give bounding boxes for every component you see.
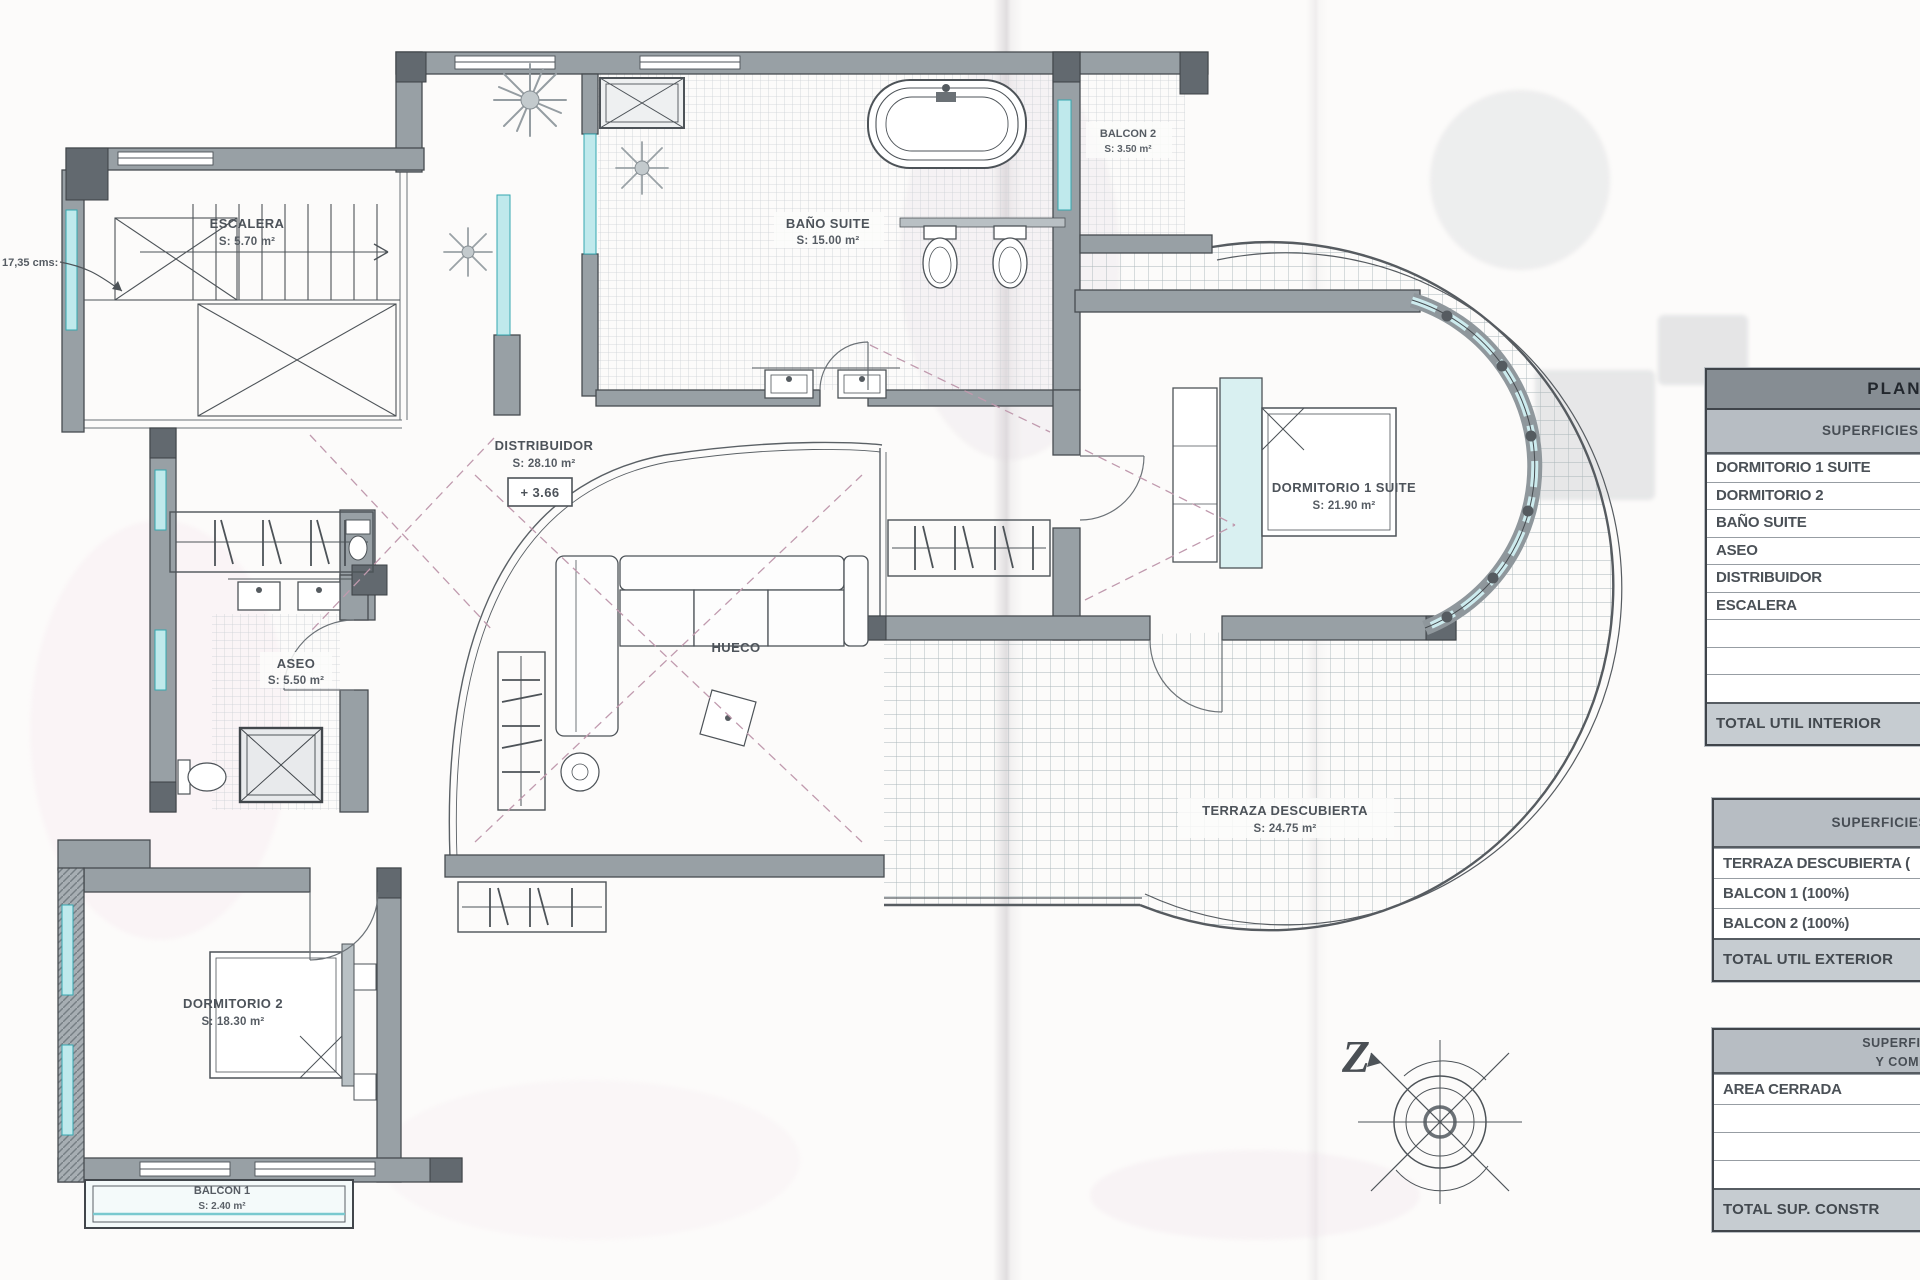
table-subtitle-construidas: SUPERFICIES CON Y COMPUTABL xyxy=(1714,1030,1920,1074)
table-superficies-interiores: PLANTA A SUPERFICIES ÚTILES INTE DORMITO… xyxy=(1705,368,1920,746)
room-label-dormitorio1: DORMITORIO 1 SUITE xyxy=(1272,480,1416,495)
plant xyxy=(494,64,566,136)
side-table xyxy=(561,753,599,791)
table-row: BAÑO SUITE xyxy=(1707,509,1920,537)
floor-plan-drawing: ESCALERA S: 5.70 m² DISTRIBUIDOR S: 28.1… xyxy=(0,0,1920,1280)
aseo-shower xyxy=(240,728,322,802)
room-label-terraza: TERRAZA DESCUBIERTA xyxy=(1202,803,1368,818)
room-area-balcon2: S: 3.50 m² xyxy=(1104,144,1152,155)
hall-closet xyxy=(458,882,606,932)
table-subtitle-interiores: SUPERFICIES ÚTILES INTE xyxy=(1707,410,1920,454)
toilet xyxy=(923,226,957,288)
table-row: BALCON 1 (100%) xyxy=(1714,878,1920,908)
table-row xyxy=(1707,619,1920,647)
svg-text:+ 3.66: + 3.66 xyxy=(521,485,560,500)
compass-north-letter: Z xyxy=(1341,1031,1370,1082)
table-superficies-exteriores: SUPERFICIES ÚTILES EXT TERRAZA DESCUBIER… xyxy=(1712,798,1920,982)
room-area-bano-suite: S: 15.00 m² xyxy=(797,235,860,247)
room-area-balcon1: S: 2.40 m² xyxy=(198,1201,246,1212)
table-row: ASEO xyxy=(1707,537,1920,565)
compass-rose xyxy=(1358,1040,1522,1204)
table-row: TERRAZA DESCUBIERTA ( xyxy=(1714,848,1920,878)
table-row xyxy=(1714,1132,1920,1160)
table-row: DORMITORIO 2 xyxy=(1707,482,1920,510)
bathtub xyxy=(868,80,1026,168)
table-row xyxy=(1714,1160,1920,1188)
table-row xyxy=(1707,647,1920,675)
room-label-balcon2: BALCON 2 xyxy=(1100,128,1156,140)
room-area-aseo: S: 5.50 m² xyxy=(268,675,324,687)
room-area-dormitorio1: S: 21.90 m² xyxy=(1313,500,1376,512)
room-area-dormitorio2: S: 18.30 m² xyxy=(202,1016,265,1028)
room-area-distribuidor: S: 28.10 m² xyxy=(513,458,576,470)
room-area-terraza: S: 24.75 m² xyxy=(1254,823,1317,835)
table-title-planta: PLANTA A xyxy=(1707,370,1920,410)
room-label-bano-suite: BAÑO SUITE xyxy=(786,216,870,231)
table-row: DISTRIBUIDOR xyxy=(1707,564,1920,592)
plant xyxy=(444,228,492,276)
shower-bano xyxy=(600,78,684,128)
table-total-construida: TOTAL SUP. CONSTR xyxy=(1714,1188,1920,1230)
table-row: BALCON 2 (100%) xyxy=(1714,908,1920,938)
aseo-sinks xyxy=(228,579,352,610)
room-label-hueco: HUECO xyxy=(712,640,761,655)
level-marker: + 3.66 xyxy=(508,478,572,506)
table-row: ESCALERA xyxy=(1707,592,1920,620)
room-label-balcon1: BALCON 1 xyxy=(194,1185,250,1197)
table-row: AREA CERRADA xyxy=(1714,1074,1920,1104)
table-total-interior: TOTAL UTIL INTERIOR xyxy=(1707,702,1920,744)
table-total-exterior: TOTAL UTIL EXTERIOR xyxy=(1714,938,1920,980)
room-label-aseo: ASEO xyxy=(277,656,315,671)
table-subtitle-line2: Y COMPUTABL xyxy=(1714,1053,1920,1072)
room-area-escalera: S: 5.70 m² xyxy=(219,236,275,248)
room-label-escalera: ESCALERA xyxy=(210,216,285,231)
floor-plan-page: ESCALERA S: 5.70 m² DISTRIBUIDOR S: 28.1… xyxy=(0,0,1920,1280)
table-row xyxy=(1707,674,1920,702)
plant xyxy=(616,142,668,194)
corridor-closet-vertical xyxy=(498,652,545,810)
table-row: DORMITORIO 1 SUITE xyxy=(1707,454,1920,482)
table-superficies-construidas: SUPERFICIES CON Y COMPUTABL AREA CERRADA… xyxy=(1712,1028,1920,1232)
bidet xyxy=(993,226,1027,288)
coffee-table-dot xyxy=(725,715,731,721)
table-subtitle-exteriores: SUPERFICIES ÚTILES EXT xyxy=(1714,800,1920,848)
dimension-annotation: 17,35 cms: xyxy=(2,257,58,269)
room-label-dormitorio2: DORMITORIO 2 xyxy=(183,996,283,1011)
table-subtitle-line1: SUPERFICIES CON xyxy=(1714,1034,1920,1053)
room-label-distribuidor: DISTRIBUIDOR xyxy=(495,438,594,453)
table-row xyxy=(1714,1104,1920,1132)
suite-closet xyxy=(888,520,1050,576)
